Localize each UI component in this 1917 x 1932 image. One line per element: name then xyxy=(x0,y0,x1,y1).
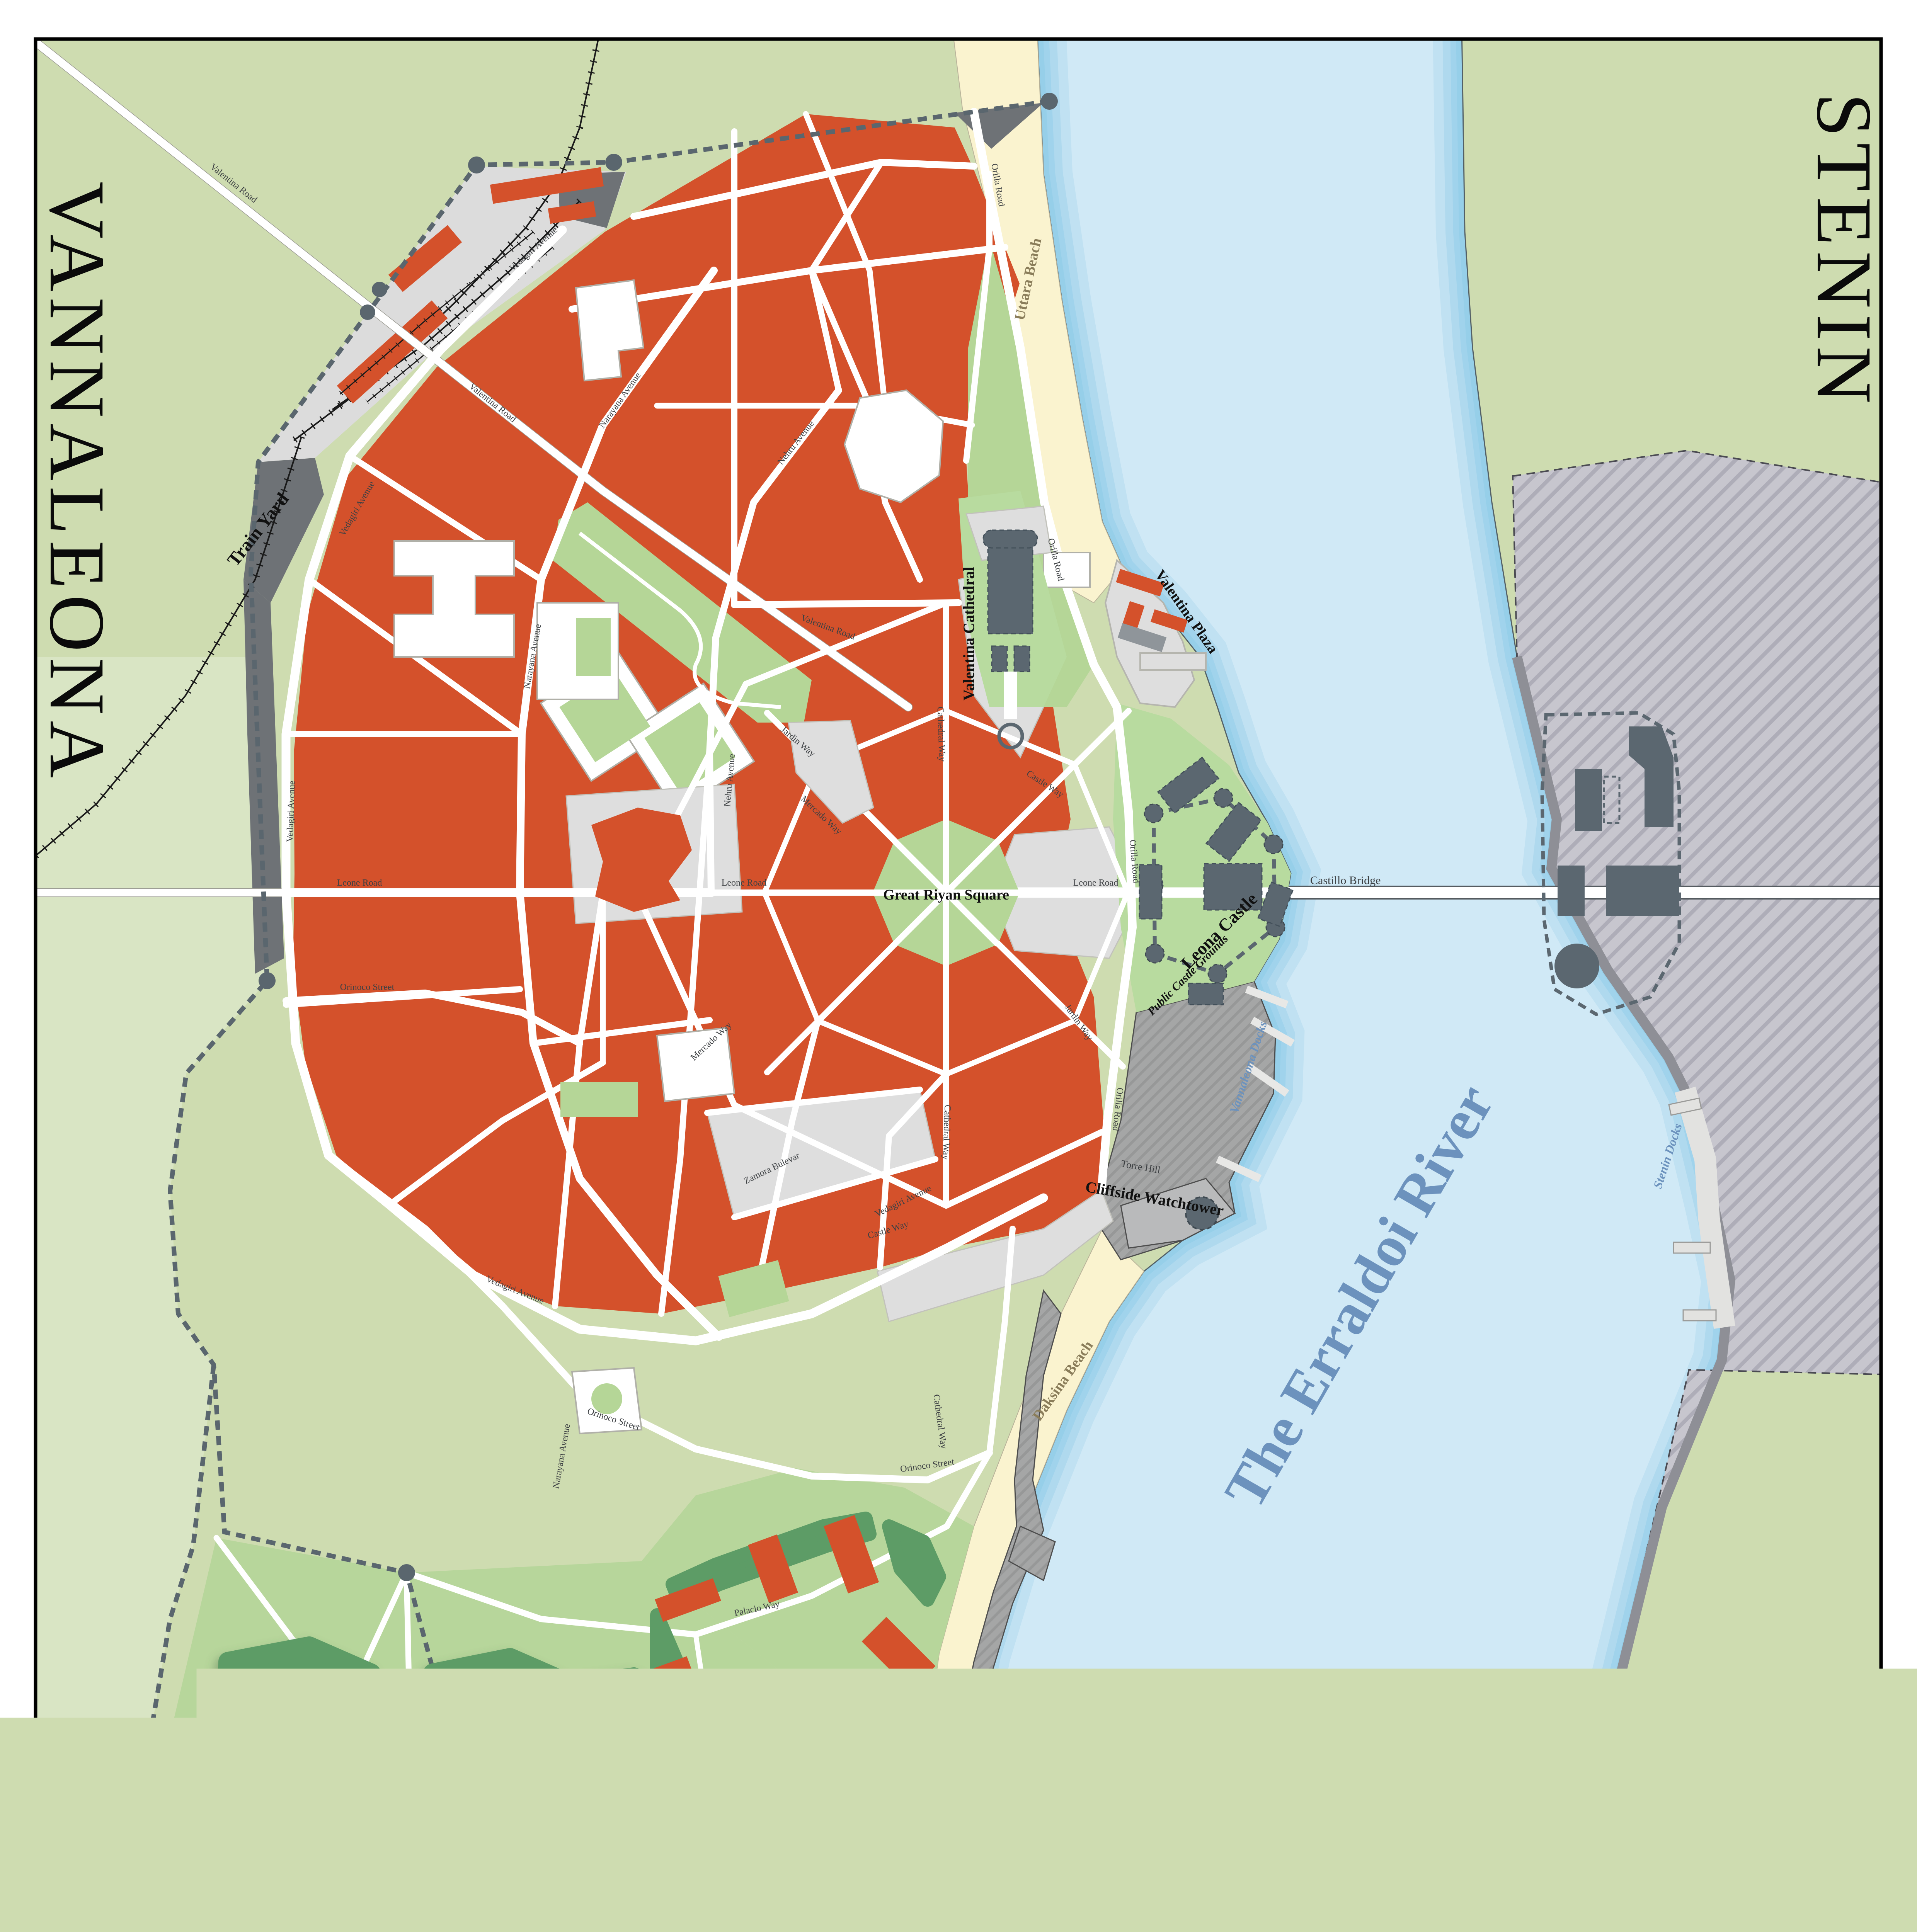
svg-text:Cathedral Way: Cathedral Way xyxy=(935,706,947,762)
svg-text:Great Riyan Square: Great Riyan Square xyxy=(883,887,1009,903)
svg-text:Vedagiri Avenue: Vedagiri Avenue xyxy=(285,781,297,842)
svg-text:VANNALEONA: VANNALEONA xyxy=(33,182,121,784)
svg-text:STENIN: STENIN xyxy=(1800,93,1888,410)
svg-text:Valentina Cathedral: Valentina Cathedral xyxy=(960,567,977,701)
svg-text:Leone Road: Leone Road xyxy=(337,878,382,888)
svg-text:Cathedral Way: Cathedral Way xyxy=(941,1105,953,1160)
svg-text:Orinoco Street: Orinoco Street xyxy=(340,982,395,992)
svg-text:Leone Road: Leone Road xyxy=(1073,878,1119,888)
svg-text:Leone Road: Leone Road xyxy=(722,878,767,888)
svg-text:Castillo Bridge: Castillo Bridge xyxy=(1310,874,1381,887)
